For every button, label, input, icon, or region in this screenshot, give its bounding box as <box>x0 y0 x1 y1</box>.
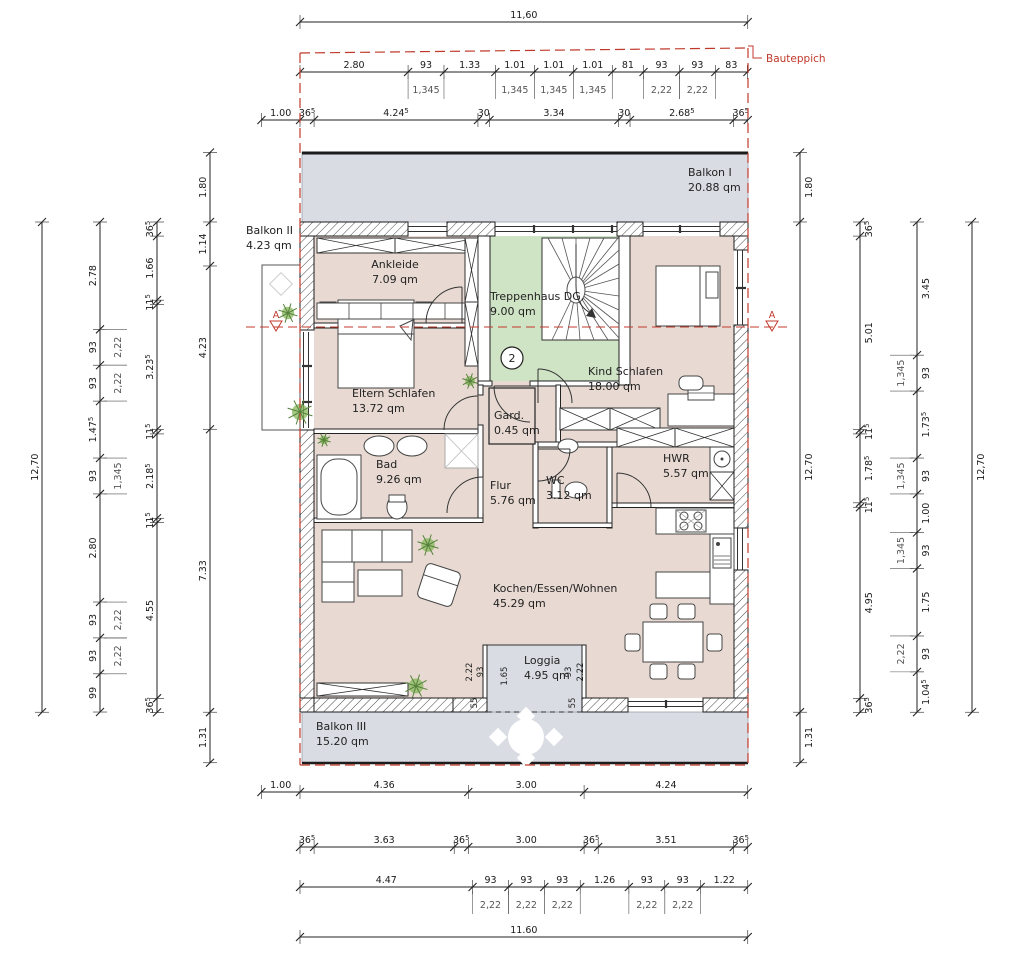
dim-right-overall: 12,70 <box>965 218 987 716</box>
svg-text:1.80: 1.80 <box>804 177 815 198</box>
dim-left-walls: 3651.661153.2351152.1851154.55365 <box>144 218 164 716</box>
svg-text:93: 93 <box>564 667 574 678</box>
svg-text:93: 93 <box>484 875 496 886</box>
svg-text:1,345: 1,345 <box>896 360 907 387</box>
svg-text:4.23: 4.23 <box>198 337 209 358</box>
svg-text:93: 93 <box>88 650 99 662</box>
svg-text:4.47: 4.47 <box>376 875 397 886</box>
svg-text:Balkon II: Balkon II <box>246 224 293 237</box>
svg-text:Loggia: Loggia <box>524 654 560 667</box>
svg-text:3.00: 3.00 <box>516 835 537 846</box>
svg-text:1.31: 1.31 <box>198 727 209 748</box>
svg-text:365: 365 <box>299 834 315 846</box>
svg-text:2,22: 2,22 <box>896 643 907 664</box>
svg-text:0.45 qm: 0.45 qm <box>494 424 540 437</box>
floor-plan-drawing: Balkon I20.88 qmBalkon II4.23 qmAnkleide… <box>0 0 1024 968</box>
dim-left-overall: 12,70 <box>30 218 49 716</box>
svg-text:Treppenhaus DG.: Treppenhaus DG. <box>489 290 584 303</box>
svg-text:4.245: 4.245 <box>383 107 409 119</box>
svg-text:2,22: 2,22 <box>113 645 124 666</box>
svg-text:1.22: 1.22 <box>714 875 735 886</box>
svg-text:115: 115 <box>144 423 156 439</box>
svg-text:5.57 qm: 5.57 qm <box>663 467 709 480</box>
floor-plan-page: Balkon I20.88 qmBalkon II4.23 qmAnkleide… <box>0 0 1024 968</box>
svg-text:365: 365 <box>144 697 156 713</box>
svg-text:2.80: 2.80 <box>88 537 99 558</box>
dim-bottom-openings: 4.479393931.2693931.222,222,222,222,222,… <box>296 875 752 914</box>
svg-text:1,345: 1,345 <box>412 85 439 96</box>
svg-text:1.01: 1.01 <box>543 60 564 71</box>
svg-text:9.26 qm: 9.26 qm <box>376 473 422 486</box>
svg-text:99: 99 <box>88 687 99 699</box>
dim-bottom-main: 1.004.363.004.24 <box>257 780 751 799</box>
svg-text:1.475: 1.475 <box>87 417 99 443</box>
svg-text:365: 365 <box>453 834 469 846</box>
dim-top-overall: 11,60 <box>296 10 752 29</box>
svg-text:83: 83 <box>725 60 737 71</box>
svg-text:115: 115 <box>144 294 156 310</box>
svg-text:93: 93 <box>655 60 667 71</box>
svg-text:2: 2 <box>509 352 516 365</box>
svg-text:12,70: 12,70 <box>30 454 41 481</box>
svg-text:3.45: 3.45 <box>921 278 932 299</box>
svg-text:4.95 qm: 4.95 qm <box>524 669 570 682</box>
svg-text:93: 93 <box>921 470 932 482</box>
svg-text:7.33: 7.33 <box>198 560 209 581</box>
svg-text:18.00 qm: 18.00 qm <box>588 380 641 393</box>
svg-text:A: A <box>769 310 776 321</box>
svg-text:93: 93 <box>556 875 568 886</box>
svg-text:93: 93 <box>921 648 932 660</box>
svg-text:1,345: 1,345 <box>540 85 567 96</box>
svg-text:93: 93 <box>691 60 703 71</box>
svg-text:1.785: 1.785 <box>863 456 875 482</box>
svg-text:2,22: 2,22 <box>113 337 124 358</box>
svg-text:4.24: 4.24 <box>655 780 676 791</box>
svg-text:1,345: 1,345 <box>113 462 124 489</box>
dim-top-walls: 1.003654.245303.34302.685365 <box>257 107 751 127</box>
svg-text:Eltern Schlafen: Eltern Schlafen <box>352 387 435 400</box>
dim-top-openings: 2.80931.331.011.011.01819393831,3451,345… <box>296 60 751 99</box>
svg-text:2,22: 2,22 <box>480 900 501 911</box>
svg-text:93: 93 <box>88 470 99 482</box>
svg-text:HWR: HWR <box>663 452 690 465</box>
svg-text:93: 93 <box>641 875 653 886</box>
svg-text:1.00: 1.00 <box>270 780 291 791</box>
svg-text:Bad: Bad <box>376 458 397 471</box>
svg-text:1.01: 1.01 <box>582 60 603 71</box>
svg-text:115: 115 <box>863 497 875 513</box>
svg-text:1.31: 1.31 <box>804 727 815 748</box>
svg-text:93: 93 <box>88 341 99 353</box>
svg-text:81: 81 <box>622 60 634 71</box>
svg-text:12,70: 12,70 <box>976 454 987 481</box>
svg-text:2,22: 2,22 <box>113 373 124 394</box>
svg-text:2.80: 2.80 <box>343 60 364 71</box>
dim-bottom-walls: 3653.633653.003653.51365 <box>296 834 752 854</box>
svg-text:4.95: 4.95 <box>864 592 875 613</box>
svg-text:93: 93 <box>420 60 432 71</box>
svg-text:3.12 qm: 3.12 qm <box>546 489 592 502</box>
svg-text:Kochen/Essen/Wohnen: Kochen/Essen/Wohnen <box>493 582 617 595</box>
svg-text:1.33: 1.33 <box>459 60 480 71</box>
svg-text:Ankleide: Ankleide <box>371 258 419 271</box>
svg-text:93: 93 <box>88 377 99 389</box>
svg-text:93: 93 <box>677 875 689 886</box>
staircase <box>542 238 619 340</box>
svg-text:115: 115 <box>144 512 156 528</box>
svg-text:93: 93 <box>921 367 932 379</box>
svg-text:13.72 qm: 13.72 qm <box>352 402 405 415</box>
svg-text:93: 93 <box>921 544 932 556</box>
room-label-balkon2: Balkon II4.23 qm <box>246 224 293 252</box>
svg-text:1,345: 1,345 <box>896 537 907 564</box>
svg-text:9.00 qm: 9.00 qm <box>490 305 536 318</box>
svg-text:1.26: 1.26 <box>594 875 615 886</box>
svg-text:365: 365 <box>863 697 875 713</box>
svg-text:2,22: 2,22 <box>636 900 657 911</box>
dim-left-outer: 1.801.144.237.331.31 <box>198 149 217 767</box>
svg-text:2.78: 2.78 <box>88 265 99 286</box>
svg-text:365: 365 <box>732 107 748 119</box>
svg-text:1.14: 1.14 <box>198 233 209 254</box>
svg-text:1,345: 1,345 <box>896 462 907 489</box>
svg-text:30: 30 <box>618 108 630 119</box>
svg-text:1.00: 1.00 <box>270 108 291 119</box>
svg-text:WC: WC <box>546 474 565 487</box>
svg-text:1.045: 1.045 <box>920 679 932 705</box>
svg-text:2,22: 2,22 <box>113 609 124 630</box>
svg-text:A: A <box>273 310 280 321</box>
svg-text:1,345: 1,345 <box>579 85 606 96</box>
dim-left-rooms: 2.7893931.475932.809393992,222,221,3452,… <box>87 218 127 716</box>
svg-text:2,22: 2,22 <box>672 900 693 911</box>
svg-text:3.00: 3.00 <box>516 780 537 791</box>
svg-text:1.01: 1.01 <box>504 60 525 71</box>
svg-text:5.76 qm: 5.76 qm <box>490 494 536 507</box>
svg-text:12.70: 12.70 <box>804 453 815 480</box>
svg-text:1.65: 1.65 <box>500 667 510 686</box>
svg-text:3.51: 3.51 <box>655 835 676 846</box>
svg-text:4.23 qm: 4.23 qm <box>246 239 292 252</box>
svg-text:1.80: 1.80 <box>198 177 209 198</box>
svg-text:3.34: 3.34 <box>543 108 564 119</box>
svg-text:Kind Schlafen: Kind Schlafen <box>588 365 663 378</box>
svg-text:365: 365 <box>144 221 156 237</box>
svg-text:93: 93 <box>476 667 486 678</box>
svg-text:2,22: 2,22 <box>516 900 537 911</box>
svg-text:1.735: 1.735 <box>920 412 932 438</box>
svg-text:3.63: 3.63 <box>374 835 395 846</box>
dim-right-openings: 3.45931.735931.00931.75931.0451,3451,345… <box>890 218 932 716</box>
svg-text:20.88 qm: 20.88 qm <box>688 181 741 194</box>
svg-text:2.185: 2.185 <box>144 463 156 489</box>
svg-text:4.36: 4.36 <box>374 780 395 791</box>
svg-text:11,60: 11,60 <box>510 10 537 21</box>
entrance-number-badge: 2 <box>501 347 523 369</box>
svg-text:1.75: 1.75 <box>921 592 932 613</box>
svg-text:2,22: 2,22 <box>651 85 672 96</box>
svg-text:45.29 qm: 45.29 qm <box>493 597 546 610</box>
svg-text:2,22: 2,22 <box>552 900 573 911</box>
svg-text:Balkon I: Balkon I <box>688 166 732 179</box>
svg-text:4.55: 4.55 <box>145 600 156 621</box>
svg-text:55: 55 <box>568 698 578 709</box>
svg-text:2.22: 2.22 <box>576 663 586 682</box>
svg-text:1.00: 1.00 <box>921 503 932 524</box>
svg-text:7.09 qm: 7.09 qm <box>372 273 418 286</box>
svg-text:Balkon III: Balkon III <box>316 720 366 733</box>
svg-text:11.60: 11.60 <box>510 925 537 936</box>
svg-text:365: 365 <box>732 834 748 846</box>
svg-text:115: 115 <box>863 423 875 439</box>
svg-text:365: 365 <box>863 221 875 237</box>
svg-text:5.01: 5.01 <box>864 322 875 343</box>
svg-text:3.235: 3.235 <box>144 354 156 380</box>
svg-text:365: 365 <box>299 107 315 119</box>
dim-right-walls: 3655.011151.7851154.95365 <box>853 218 875 716</box>
svg-text:2.22: 2.22 <box>465 663 475 682</box>
svg-text:Flur: Flur <box>490 479 511 492</box>
svg-text:Bauteppich: Bauteppich <box>766 53 826 65</box>
svg-text:55: 55 <box>470 698 480 709</box>
dim-right-outer: 1.8012.701.31 <box>793 149 815 767</box>
svg-text:2,22: 2,22 <box>687 85 708 96</box>
svg-text:2.685: 2.685 <box>669 107 695 119</box>
svg-text:93: 93 <box>88 614 99 626</box>
svg-text:1.66: 1.66 <box>145 258 156 279</box>
svg-text:93: 93 <box>520 875 532 886</box>
svg-text:30: 30 <box>478 108 490 119</box>
svg-text:15.20 qm: 15.20 qm <box>316 735 369 748</box>
svg-text:365: 365 <box>583 834 599 846</box>
svg-text:Gard.: Gard. <box>494 409 524 422</box>
svg-text:1,345: 1,345 <box>501 85 528 96</box>
dim-bottom-overall: 11.60 <box>296 925 752 944</box>
